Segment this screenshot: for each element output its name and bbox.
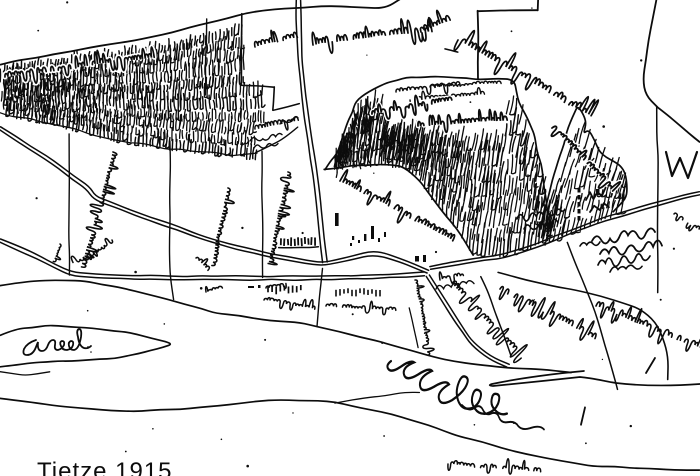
svg-text:Tietze 1915: Tietze 1915	[37, 458, 173, 476]
